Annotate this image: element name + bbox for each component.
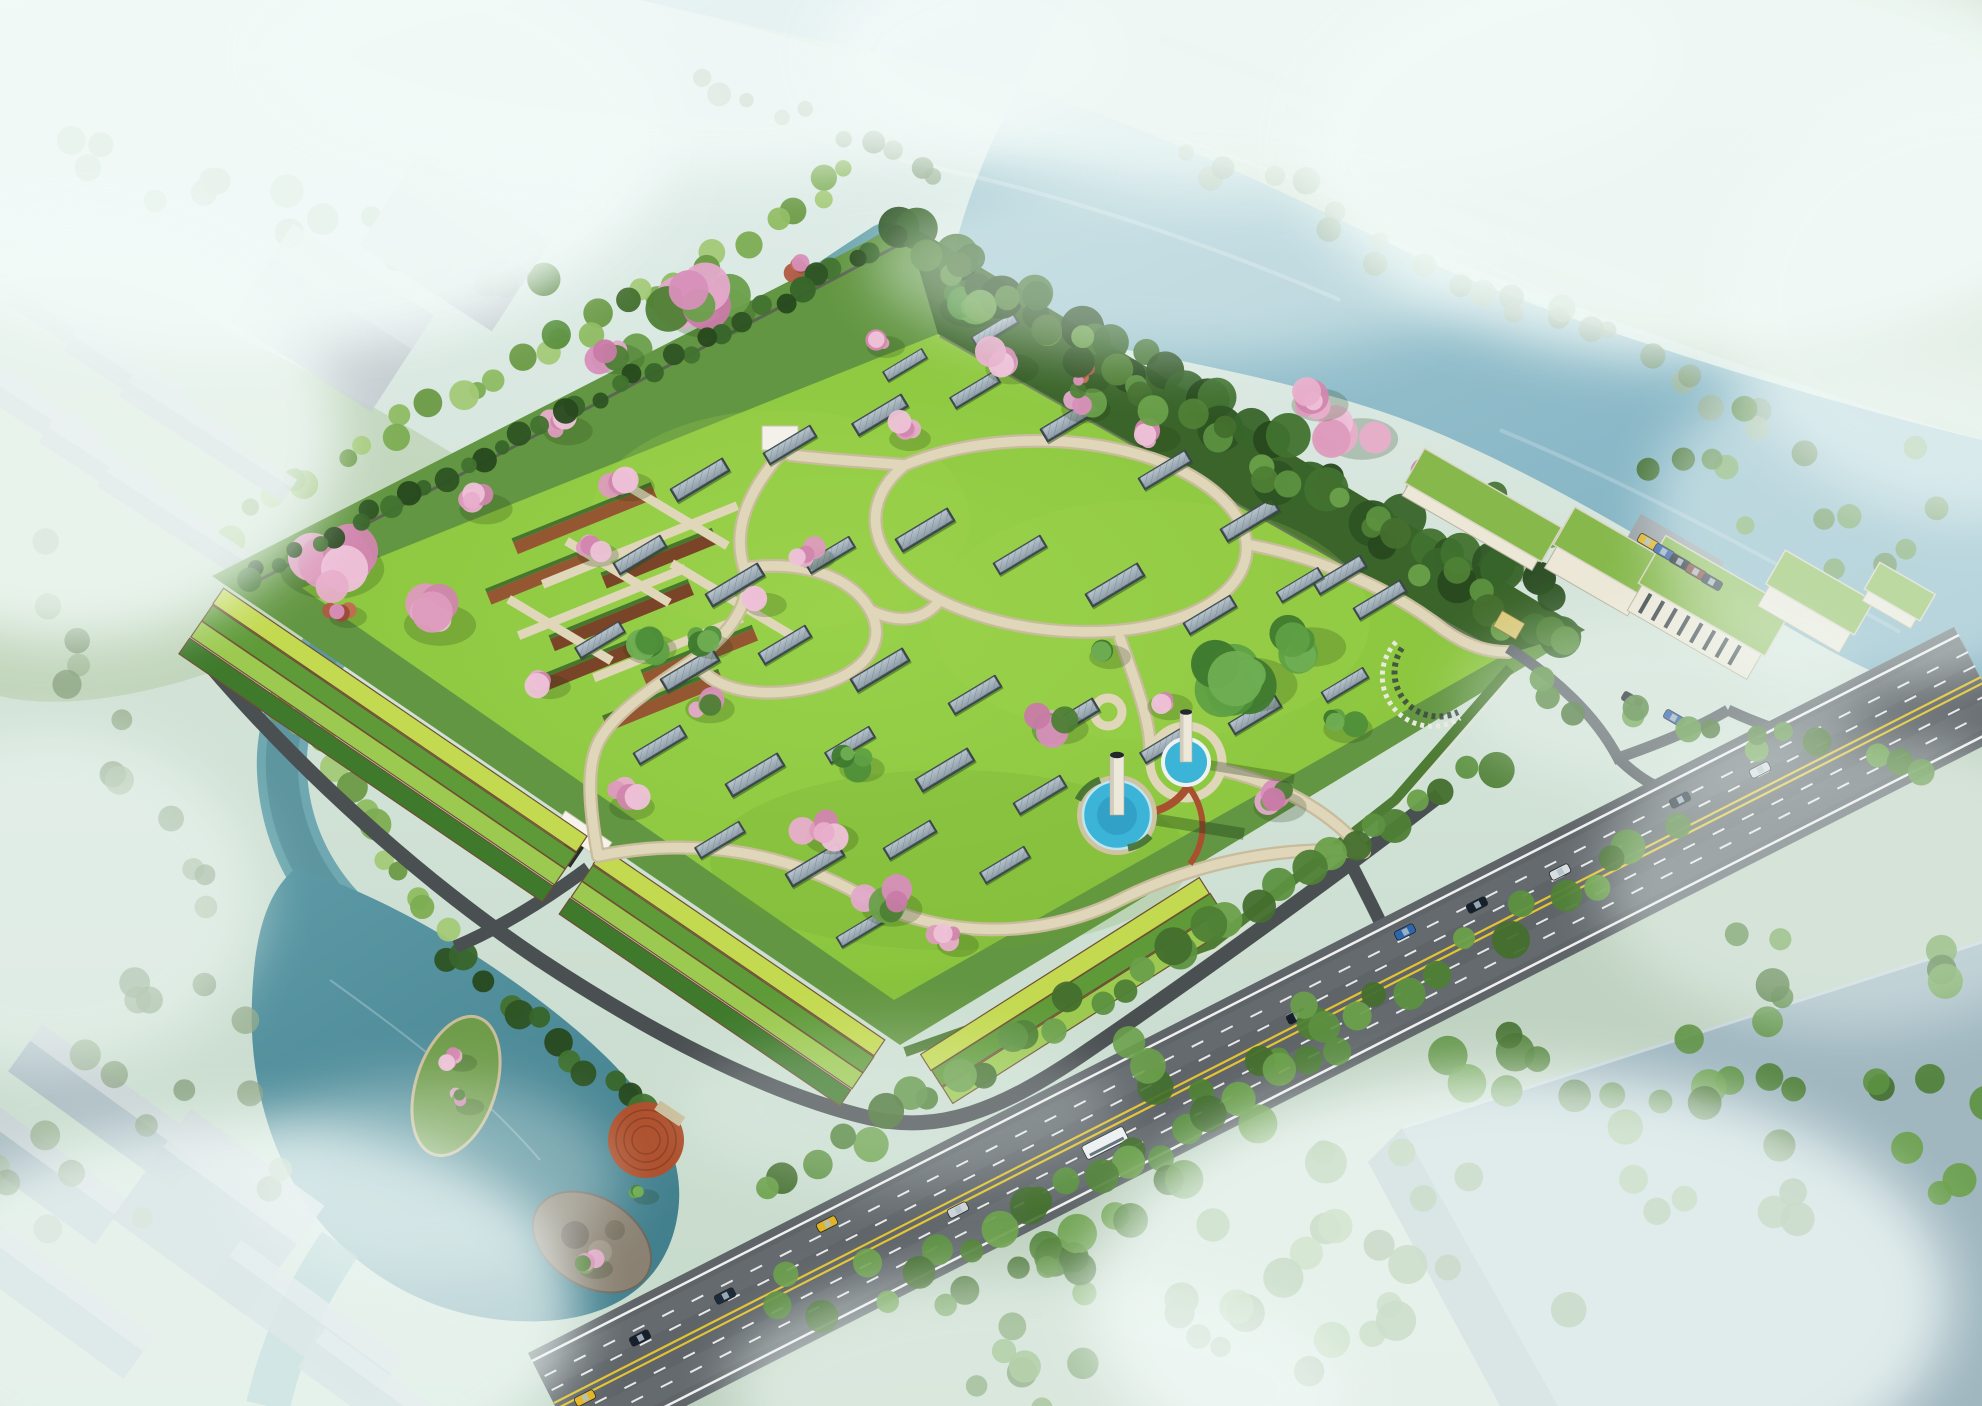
tree-row-tree	[352, 436, 371, 455]
fog-patch	[870, 170, 1490, 360]
tree	[438, 1054, 455, 1071]
tree-row-tree	[529, 1007, 550, 1028]
tree-row-tree	[731, 312, 752, 333]
tree-row-tree	[1408, 564, 1430, 586]
tree	[1359, 422, 1391, 454]
tree-row-tree	[495, 440, 509, 454]
tree-row-tree	[752, 295, 772, 315]
tree	[888, 410, 912, 434]
tree-row-tree	[380, 495, 403, 518]
forest-tree	[1756, 1063, 1784, 1091]
tree	[933, 924, 952, 943]
forest-tree	[101, 1061, 128, 1088]
tree	[524, 673, 549, 698]
tree-row-tree	[1085, 1159, 1119, 1193]
tree-row-tree	[1178, 398, 1209, 429]
tree-row-tree	[1551, 880, 1583, 912]
tree	[633, 1186, 644, 1197]
tree-row-tree	[1407, 789, 1429, 811]
tree-row-tree	[542, 320, 571, 349]
forest-tree	[773, 1262, 798, 1287]
forest-tree	[1928, 1181, 1952, 1205]
tree-row-tree	[663, 344, 685, 366]
tree	[1151, 694, 1171, 714]
tree-row-tree	[815, 190, 833, 208]
tree-row-tree	[472, 970, 494, 992]
tree-row-tree	[1138, 395, 1169, 426]
tree	[814, 822, 835, 843]
tree-row-tree	[1443, 557, 1470, 584]
forest-tree	[1190, 1095, 1227, 1132]
tree	[1134, 424, 1156, 446]
tree-row-tree	[509, 343, 536, 370]
fog-patch	[680, 1030, 1120, 1190]
forest-tree	[853, 1248, 882, 1277]
fog-patch	[1460, 610, 1860, 790]
forest-tree	[173, 1079, 195, 1101]
tree-row-tree	[339, 449, 357, 467]
tree-row-tree	[1130, 957, 1155, 982]
tree	[697, 630, 719, 652]
tree-row-tree	[1292, 850, 1327, 885]
tree-row-tree	[413, 388, 442, 417]
tree-row-tree	[925, 168, 942, 185]
forest-tree	[1113, 1026, 1145, 1058]
forest-tree	[237, 1080, 263, 1106]
rock	[605, 1220, 625, 1240]
tree-row-tree	[697, 327, 717, 347]
tree-row-tree	[850, 250, 867, 267]
forest-tree	[1293, 1045, 1322, 1074]
tree-row-tree	[735, 231, 762, 258]
forest-tree	[1781, 1077, 1806, 1102]
tree-row-tree	[1251, 466, 1278, 493]
tree-row-tree	[1154, 927, 1192, 965]
tree-row-tree	[553, 398, 579, 424]
tree-row-tree	[111, 709, 132, 730]
tree-row-tree	[683, 346, 700, 363]
tree-row-tree	[1052, 982, 1083, 1013]
tree	[412, 591, 453, 632]
forest-tree	[763, 1291, 791, 1319]
tree	[854, 748, 873, 767]
tree-row-tree	[1330, 488, 1350, 508]
tree	[590, 541, 611, 562]
tree-row-tree	[1242, 889, 1276, 923]
tree	[1312, 419, 1351, 458]
tree	[868, 331, 884, 347]
forest-tree	[1323, 1037, 1351, 1065]
tree	[1051, 706, 1078, 733]
forest-tree	[1863, 1068, 1890, 1095]
tree	[593, 339, 617, 363]
vent-tower-cylinder	[1180, 709, 1192, 762]
vent-tower-cylinder	[1110, 752, 1124, 815]
tree-row-tree	[1052, 1167, 1079, 1194]
forest-tree	[1674, 1024, 1703, 1053]
tree	[1342, 711, 1368, 737]
tree	[669, 270, 709, 310]
tree	[329, 604, 344, 619]
tree-row-tree	[232, 1006, 260, 1034]
tree	[1208, 651, 1263, 706]
forest-tree	[1524, 1046, 1550, 1072]
tree-row-tree	[52, 670, 81, 699]
tree-row-tree	[1492, 921, 1530, 959]
tree	[840, 747, 854, 761]
tree-row-tree	[435, 467, 460, 492]
tree	[1275, 622, 1310, 657]
tree-row-tree	[1190, 906, 1227, 943]
tree-row-tree	[507, 421, 531, 445]
tree-row-tree	[571, 1060, 597, 1086]
tree	[1292, 377, 1321, 406]
forest-tree	[1891, 1132, 1923, 1164]
forest-tree	[1058, 1214, 1097, 1253]
tree	[463, 492, 480, 509]
tree-row-tree	[616, 287, 641, 312]
tree-row-tree	[1114, 979, 1138, 1003]
forest-tree	[1496, 1022, 1523, 1049]
forest-tree	[1263, 1052, 1296, 1085]
forest-tree	[1915, 1064, 1945, 1094]
forest-tree	[1290, 991, 1317, 1018]
tree-row-tree	[461, 457, 477, 473]
tree-row-tree	[437, 918, 461, 942]
tree-row-tree	[1453, 927, 1475, 949]
tree-row-tree	[1678, 364, 1701, 387]
fog-patch	[240, 1080, 620, 1280]
tree-row-tree	[593, 392, 609, 408]
tree	[316, 570, 349, 603]
tree-row-tree	[756, 1176, 779, 1199]
tree-row-tree	[313, 536, 329, 552]
tree	[635, 626, 663, 654]
forest-tree	[30, 1120, 60, 1150]
tree-row-tree	[768, 207, 791, 230]
tree-row-tree	[645, 363, 664, 382]
tree-row-tree	[1423, 961, 1452, 990]
tree-row-tree	[612, 375, 629, 392]
tree	[625, 784, 651, 810]
tree	[575, 1255, 591, 1271]
tree-row-tree	[1266, 413, 1311, 458]
tree	[1072, 395, 1092, 415]
tree-row-tree	[1092, 992, 1115, 1015]
tree-row-tree	[1393, 978, 1425, 1010]
tree-row-tree	[353, 513, 370, 530]
tree	[788, 548, 805, 565]
tree-row-tree	[1380, 518, 1411, 549]
forest-tree	[1637, 458, 1660, 481]
tree-row-tree	[530, 416, 549, 435]
tree	[700, 694, 722, 716]
tree-row-tree	[1427, 778, 1454, 805]
tree-row-tree	[1214, 416, 1237, 439]
tree	[1326, 713, 1345, 732]
tree-row-tree	[1455, 756, 1478, 779]
tree-row-tree	[777, 294, 797, 314]
tree-row-tree	[960, 1239, 983, 1262]
tree-row-tree	[1537, 583, 1565, 611]
tree-row-tree	[449, 380, 479, 410]
tree	[612, 467, 639, 494]
rendering-stage	[0, 0, 1982, 1406]
tree-row-tree	[388, 404, 410, 426]
tree	[886, 891, 908, 913]
tree	[1262, 788, 1285, 811]
forest-tree	[1010, 1187, 1048, 1225]
tree-row-tree	[1041, 1018, 1066, 1043]
tree-row-tree	[1343, 1001, 1372, 1030]
tree-row-tree	[383, 424, 410, 451]
tree	[1024, 703, 1050, 729]
tree-row-tree	[410, 895, 434, 919]
tree	[742, 586, 767, 611]
tree-row-tree	[1508, 890, 1535, 917]
tree-row-tree	[1274, 470, 1301, 497]
tree	[1091, 641, 1111, 661]
tree-row-tree	[1361, 982, 1386, 1007]
aerial-site-rendering	[0, 0, 1982, 1406]
